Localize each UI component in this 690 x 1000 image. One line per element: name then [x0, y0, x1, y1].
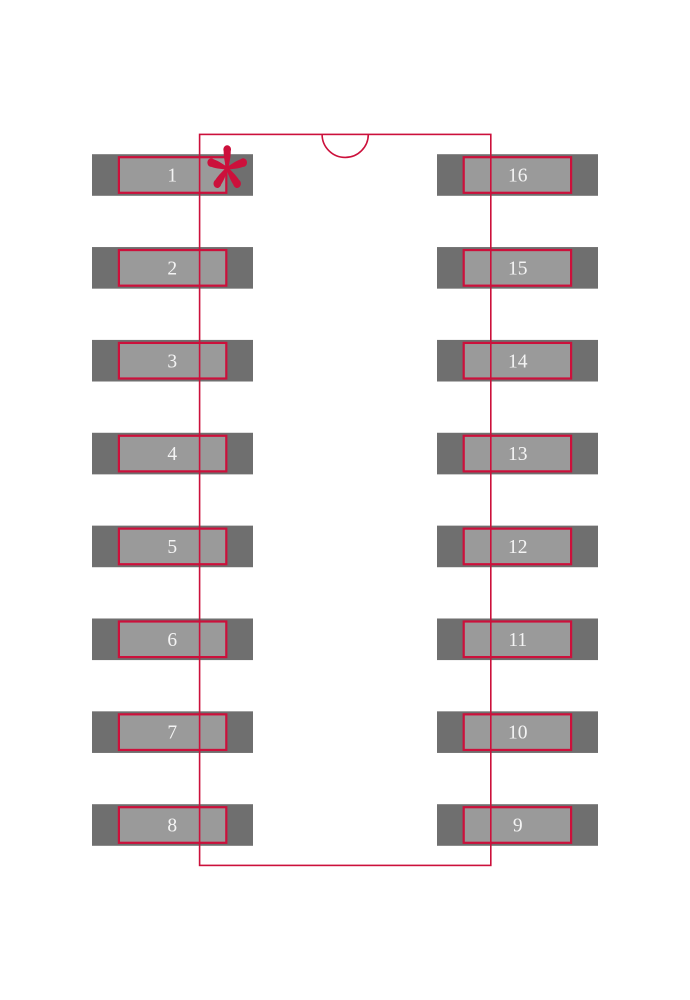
svg-text:14: 14: [508, 351, 528, 372]
svg-text:9: 9: [513, 816, 523, 837]
svg-text:12: 12: [508, 537, 528, 558]
svg-text:4: 4: [167, 444, 177, 465]
svg-text:11: 11: [508, 630, 527, 651]
svg-text:10: 10: [508, 723, 528, 744]
svg-text:3: 3: [167, 351, 177, 372]
svg-text:13: 13: [508, 444, 528, 465]
svg-text:7: 7: [167, 723, 177, 744]
svg-text:1: 1: [167, 166, 177, 187]
svg-text:5: 5: [167, 537, 177, 558]
svg-text:6: 6: [167, 630, 177, 651]
svg-text:15: 15: [508, 258, 528, 279]
svg-text:8: 8: [167, 816, 177, 837]
svg-text:16: 16: [508, 166, 528, 187]
svg-text:2: 2: [167, 258, 177, 279]
